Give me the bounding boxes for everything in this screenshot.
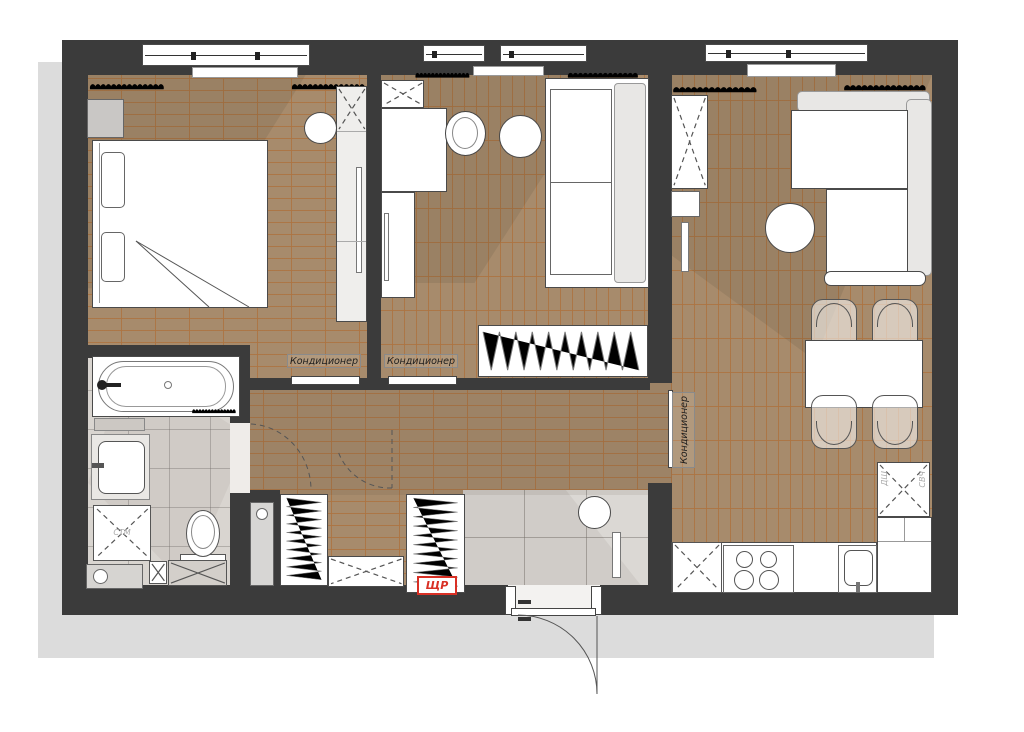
middle-room-door-swing: [334, 427, 396, 491]
ac-label-living: Кондиционер: [672, 392, 695, 468]
bath-cabinet: [86, 564, 143, 589]
bedroom-dresser: [87, 99, 124, 138]
dining-chair: [811, 395, 857, 449]
vanity-counter: [91, 434, 150, 500]
desk-chair: [445, 111, 486, 156]
window-sill-living: [747, 64, 836, 77]
burner: [736, 551, 753, 568]
curtain-bedroom-left: [88, 80, 166, 93]
toilet-bowl: [186, 510, 220, 557]
stove: [723, 545, 794, 593]
entry-mirror-column: [250, 502, 274, 586]
middle-wardrobe: [381, 192, 415, 298]
window-middle-room-right: [500, 45, 587, 62]
wall-left: [62, 40, 88, 615]
refrigerator: [672, 542, 722, 593]
living-tall-cabinet: [671, 95, 708, 189]
bathroom-door-swing: [246, 420, 316, 494]
entry-radiator: [612, 532, 621, 578]
middle-shelf-unit: [381, 80, 424, 108]
sofa-chaise: [791, 110, 908, 189]
sink-basin: [844, 550, 873, 586]
microwave-label: СВЧ: [918, 471, 927, 488]
air-conditioner-unit: [388, 376, 457, 385]
bath-shelf: [94, 418, 145, 431]
living-small-cabinet: [671, 191, 700, 217]
window-living-room: [705, 44, 868, 62]
bedroom-wardrobe: [336, 86, 367, 322]
round-table: [499, 115, 542, 158]
oven-label: ДШ: [880, 471, 889, 486]
burner: [760, 551, 777, 568]
ac-label-bedroom: Кондиционер: [287, 354, 361, 368]
drain-icon: [164, 381, 172, 389]
middle-sofa: [545, 78, 649, 288]
window-middle-room-left: [423, 45, 485, 62]
washbasin: [98, 441, 145, 494]
sofa-armrest: [824, 271, 926, 286]
entry-pouf: [578, 496, 611, 529]
kitchen-sink-cabinet: [838, 545, 877, 593]
bedroom-pouf: [304, 112, 337, 144]
wardrobe-sliding-door: [384, 213, 389, 281]
wardrobe-sliding-door: [356, 167, 362, 273]
middle-hall-wardrobe: [478, 325, 648, 377]
desk: [381, 108, 447, 192]
basin-faucet-icon: [92, 463, 104, 468]
dining-chair: [872, 395, 918, 449]
living-radiator: [681, 222, 689, 272]
wall-middle-living: [648, 75, 672, 383]
burner: [734, 570, 754, 590]
entrance-door-swing: [514, 613, 602, 699]
pillow: [101, 152, 125, 208]
shower-curtain: [191, 406, 237, 416]
washing-machine-label: СТМ: [94, 528, 150, 537]
kitchen-counter-right: [877, 517, 932, 593]
window-sill-bedroom: [192, 67, 298, 78]
coffee-table: [765, 203, 815, 253]
wall-right: [932, 40, 958, 615]
ac-label-middle: Кондиционер: [384, 354, 458, 368]
washing-machine: СТМ: [93, 505, 151, 561]
wall-entry-kitchen: [648, 483, 672, 585]
sofa-seat: [550, 89, 612, 275]
door-handle-icon: [518, 600, 531, 604]
sofa-seat: [826, 189, 908, 273]
air-conditioner-unit: [291, 376, 360, 385]
entry-wardrobe-left: [280, 494, 328, 586]
floor-plan: ДШ СВЧ Кондиционер Кондиционер Кондицион…: [0, 0, 1024, 732]
shoe-cabinet: [328, 556, 404, 587]
wall-bedroom-middle: [367, 75, 381, 390]
blanket-fold: [131, 236, 271, 311]
sofa-back-right: [906, 99, 932, 276]
kitchen-oven-microwave-column: ДШ СВЧ: [877, 462, 930, 517]
pillow: [101, 232, 125, 282]
bed: [92, 140, 268, 308]
duct-box: [168, 560, 227, 586]
electrical-panel-label: ЩР: [417, 576, 457, 595]
vent-box: [149, 561, 167, 584]
sofa-back: [614, 83, 646, 283]
faucet-icon: [856, 582, 860, 592]
entry-hall-floor: [463, 490, 650, 585]
burner: [759, 570, 779, 590]
window-sill-middle: [473, 66, 544, 76]
window-bedroom: [142, 44, 310, 66]
